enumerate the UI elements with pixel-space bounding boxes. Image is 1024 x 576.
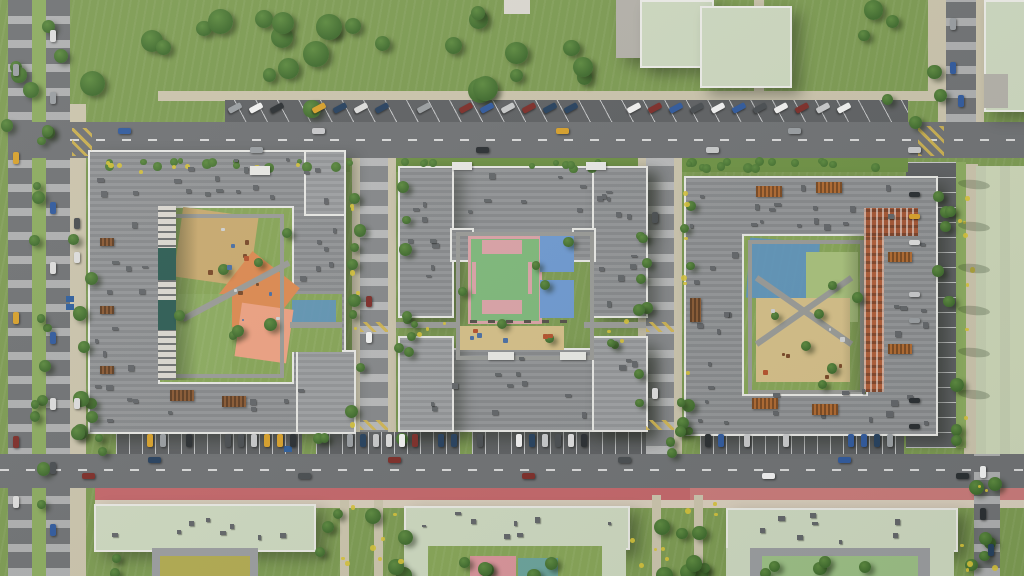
flower-shrub-icon: [960, 544, 963, 547]
tree-icon: [666, 437, 676, 447]
play-equipment-icon: [543, 334, 548, 339]
rooftop-unit: [205, 192, 210, 196]
play-equipment-icon: [840, 337, 845, 342]
car-icon: [290, 434, 296, 447]
tree-icon: [563, 237, 574, 248]
rooftop-unit: [577, 208, 582, 213]
rooftop-unit: [769, 208, 775, 211]
rooftop-unit: [519, 357, 525, 360]
flower-shrub-icon: [686, 371, 690, 375]
rooftop-unit: [112, 261, 119, 264]
car-icon: [360, 434, 366, 447]
car-icon: [542, 102, 557, 114]
flower-shrub-icon: [639, 563, 644, 568]
tree-icon: [31, 400, 40, 409]
tree-icon: [348, 294, 361, 307]
rooftop-unit: [132, 222, 137, 227]
car-icon: [542, 434, 548, 447]
car-icon: [988, 544, 994, 556]
tree-icon: [445, 37, 462, 54]
car-icon: [794, 102, 809, 114]
car-icon: [13, 436, 19, 448]
car-icon: [529, 434, 535, 447]
flower-shrub-icon: [345, 561, 349, 565]
rooftop-unit: [522, 381, 528, 385]
rooftop-unit: [630, 264, 636, 269]
tree-icon: [459, 557, 470, 568]
tree-icon: [78, 341, 90, 353]
car-icon: [958, 95, 964, 107]
play-equipment-icon: [256, 283, 259, 286]
bush-icon: [420, 160, 427, 167]
tree-icon: [634, 369, 644, 379]
rooftop-unit: [602, 194, 606, 199]
rooftop-unit: [700, 195, 704, 198]
rooftop-unit: [923, 322, 928, 328]
rooftop-unit: [101, 191, 108, 196]
bush-icon: [178, 158, 184, 164]
tree-icon: [677, 398, 685, 406]
tree-icon: [545, 557, 558, 570]
tree-icon: [676, 528, 688, 540]
rooftop-unit: [112, 327, 118, 330]
bush-icon: [829, 161, 837, 169]
tree-icon: [814, 309, 824, 319]
flower-shrub-icon: [378, 557, 382, 561]
car-icon: [909, 424, 920, 429]
tree-icon: [1, 119, 13, 131]
tree-icon: [458, 287, 467, 296]
bush-icon: [233, 162, 240, 169]
tree-icon: [988, 477, 1002, 491]
tree-icon: [264, 318, 277, 331]
flower-shrub-icon: [630, 538, 635, 543]
flower-shrub-icon: [341, 557, 345, 561]
car-icon: [909, 318, 920, 323]
car-icon: [50, 202, 56, 214]
rooftop-unit: [895, 519, 899, 525]
car-icon: [838, 457, 851, 463]
tree-icon: [680, 224, 689, 233]
pergola-icon: [888, 252, 912, 262]
flower-shrub-icon: [370, 545, 376, 551]
bush-icon: [702, 164, 711, 173]
flower-shrub-icon: [350, 204, 354, 208]
car-icon: [887, 434, 893, 447]
rooftop-unit: [599, 267, 604, 270]
car-icon: [710, 102, 725, 114]
car-icon: [147, 434, 153, 447]
tree-icon: [112, 554, 120, 562]
tree-icon: [864, 0, 883, 19]
rooftop-unit: [773, 393, 780, 397]
pergola-icon: [690, 298, 701, 322]
bush-icon: [208, 158, 217, 167]
car-icon: [264, 434, 270, 447]
rooftop-unit: [333, 228, 336, 233]
bush-icon: [871, 163, 880, 172]
tree-icon: [95, 434, 103, 442]
rooftop-unit: [814, 218, 819, 224]
tree-icon: [375, 36, 390, 51]
pergola-icon: [100, 366, 114, 374]
play-equipment-icon: [231, 244, 235, 248]
car-icon: [705, 434, 711, 447]
flower-shrub-icon: [985, 489, 988, 492]
pergola-icon: [250, 166, 270, 175]
play-equipment-icon: [269, 292, 273, 296]
rooftop-unit: [139, 289, 144, 294]
flower-shrub-icon: [683, 191, 688, 196]
car-icon: [50, 92, 56, 104]
tree-icon: [692, 526, 706, 540]
rooftop-unit: [724, 312, 729, 317]
tree-icon: [407, 332, 416, 341]
rooftop-unit: [717, 329, 720, 334]
rooftop-unit: [842, 391, 849, 395]
car-icon: [706, 147, 719, 153]
car-icon: [13, 312, 19, 324]
tree-icon: [282, 228, 292, 238]
rooftop-unit: [422, 525, 425, 528]
tree-shadow: [958, 262, 991, 274]
car-icon: [353, 102, 368, 114]
pergola-icon: [752, 398, 778, 409]
tree-shadow: [958, 304, 991, 316]
car-icon: [668, 102, 683, 114]
tree-icon: [98, 447, 107, 456]
pergola-icon: [222, 396, 246, 407]
rooftop-unit: [755, 204, 759, 209]
rooftop-unit: [924, 421, 928, 425]
rooftop-unit: [431, 265, 434, 270]
car-icon: [773, 102, 788, 114]
rooftop-unit: [850, 206, 855, 212]
flower-shrub-icon: [350, 270, 355, 275]
tree-icon: [411, 321, 419, 329]
tree-icon: [402, 216, 411, 225]
rooftop-unit: [324, 247, 328, 251]
car-icon: [555, 434, 561, 447]
rooftop-unit: [280, 533, 286, 537]
car-icon: [500, 102, 515, 114]
car-icon: [386, 434, 392, 447]
tree-icon: [68, 234, 78, 244]
play-equipment-icon: [782, 353, 786, 357]
bench-icon: [542, 320, 549, 323]
flower-shrub-icon: [417, 332, 422, 337]
rooftop-unit: [607, 301, 611, 307]
rooftop-unit: [618, 275, 624, 281]
tree-icon: [37, 137, 46, 146]
tree-icon: [255, 10, 273, 28]
rooftop-unit: [432, 406, 437, 411]
bush-icon: [153, 162, 162, 171]
rooftop-unit: [298, 389, 304, 392]
car-icon: [332, 102, 347, 114]
rooftop-unit: [843, 222, 848, 225]
tree-icon: [254, 258, 263, 267]
rooftop-unit: [95, 385, 102, 388]
rooftop-unit: [107, 290, 112, 295]
pergola-icon: [488, 352, 514, 360]
rooftop-unit: [286, 158, 289, 161]
rooftop-unit: [893, 533, 898, 538]
car-icon: [861, 434, 867, 447]
rooftop-unit: [133, 399, 139, 403]
play-equipment-icon: [245, 240, 249, 244]
play-equipment-icon: [470, 336, 474, 340]
car-icon: [416, 102, 431, 114]
rooftop-unit: [839, 540, 842, 544]
car-icon: [476, 147, 489, 153]
pergola-icon: [170, 390, 194, 401]
car-icon: [160, 434, 166, 447]
rooftop-unit: [580, 185, 585, 188]
flower-shrub-icon: [683, 282, 686, 285]
rooftop-unit: [174, 179, 181, 183]
rooftop-unit: [606, 191, 612, 194]
rooftop-unit: [888, 214, 895, 218]
tree-icon: [505, 42, 528, 65]
tree-icon: [232, 325, 244, 337]
car-icon: [718, 434, 724, 447]
tree-icon: [819, 556, 831, 568]
bench-icon: [488, 320, 495, 323]
rooftop-unit: [631, 255, 637, 258]
rooftop-unit: [95, 339, 98, 342]
tree-icon: [345, 18, 361, 34]
car-icon: [438, 434, 444, 447]
tree-icon: [347, 259, 358, 270]
tree-icon: [73, 306, 88, 321]
rooftop-unit: [220, 531, 226, 535]
rooftop-unit: [186, 189, 191, 193]
rooftop-unit: [315, 168, 320, 171]
car-icon: [836, 102, 851, 114]
car-icon: [277, 434, 283, 447]
tree-icon: [638, 234, 647, 243]
rooftop-unit: [127, 398, 132, 401]
car-icon: [366, 332, 372, 343]
tree-icon: [473, 76, 499, 102]
car-icon: [13, 496, 19, 508]
rooftop-unit: [432, 243, 439, 248]
rooftop-unit: [921, 309, 926, 312]
car-icon: [451, 434, 457, 447]
car-icon: [399, 434, 405, 447]
tree-shadow: [958, 388, 991, 400]
tree-icon: [394, 343, 404, 353]
play-equipment-icon: [829, 328, 832, 331]
tree-icon: [354, 224, 367, 237]
flower-shrub-icon: [684, 237, 688, 241]
tree-icon: [156, 40, 170, 54]
tree-icon: [303, 41, 329, 67]
car-icon: [618, 457, 631, 463]
flower-shrub-icon: [624, 319, 629, 324]
car-icon: [374, 102, 389, 114]
play-equipment-icon: [839, 364, 843, 368]
car-icon: [74, 252, 80, 263]
bush-icon: [429, 159, 437, 167]
rooftop-unit: [304, 171, 308, 174]
tree-icon: [39, 360, 51, 372]
rooftop-unit: [492, 410, 498, 416]
tree-icon: [110, 568, 121, 576]
play-equipment-icon: [234, 289, 237, 292]
tree-icon: [345, 405, 358, 418]
rooftop-unit: [514, 521, 517, 527]
tree-icon: [356, 363, 365, 372]
bush-icon: [751, 164, 760, 173]
tree-icon: [532, 261, 541, 270]
play-equipment-icon: [763, 370, 767, 374]
car-icon: [412, 434, 418, 447]
bench-icon: [470, 320, 477, 323]
car-icon: [50, 332, 56, 344]
pergola-icon: [756, 186, 782, 197]
rooftop-unit: [895, 331, 902, 337]
tree-icon: [940, 221, 950, 231]
tree-icon: [927, 65, 941, 79]
car-icon: [477, 434, 483, 447]
flower-shrub-icon: [354, 327, 357, 330]
rooftop-unit: [516, 372, 521, 376]
car-icon: [227, 102, 242, 114]
play-equipment-icon: [238, 291, 243, 296]
rooftop-unit: [324, 198, 328, 204]
car-icon: [347, 434, 353, 447]
rooftop-unit: [801, 185, 805, 191]
bush-icon: [820, 159, 828, 167]
car-icon: [788, 128, 801, 134]
flower-shrub-icon: [967, 561, 973, 567]
detail-layer: [0, 0, 1024, 576]
rooftop-unit: [824, 224, 830, 229]
flower-shrub-icon: [426, 327, 429, 330]
rooftop-unit: [690, 224, 693, 229]
car-icon: [909, 398, 920, 403]
car-icon: [248, 102, 263, 114]
rooftop-unit: [112, 533, 117, 537]
bush-icon: [791, 159, 800, 168]
rooftop-unit: [431, 402, 434, 406]
tree-icon: [686, 555, 703, 572]
car-icon: [956, 473, 969, 479]
car-icon: [82, 473, 95, 479]
car-icon: [744, 434, 750, 447]
tree-icon: [945, 206, 956, 217]
tree-icon: [54, 49, 68, 63]
tree-icon: [365, 508, 381, 524]
car-icon: [909, 240, 920, 245]
rooftop-unit: [558, 176, 561, 179]
bench-icon: [506, 320, 513, 323]
flower-shrub-icon: [620, 339, 624, 343]
car-icon: [652, 388, 658, 399]
play-equipment-icon: [221, 228, 225, 232]
tree-icon: [30, 411, 41, 422]
bush-icon: [553, 160, 559, 166]
tree-icon: [349, 310, 357, 318]
rooftop-unit: [495, 373, 500, 376]
flower-shrub-icon: [685, 508, 691, 514]
rooftop-unit: [484, 199, 490, 202]
car-icon: [298, 473, 311, 479]
tree-icon: [934, 89, 947, 102]
tree-icon: [654, 519, 670, 535]
rooftop-unit: [284, 399, 288, 404]
rooftop-unit: [708, 386, 715, 389]
rooftop-unit: [430, 239, 436, 243]
flower-shrub-icon: [108, 163, 114, 169]
rooftop-unit: [168, 411, 172, 414]
rooftop-unit: [422, 217, 427, 222]
rooftop-unit: [133, 191, 138, 195]
rooftop-unit: [697, 323, 703, 328]
rooftop-unit: [188, 167, 194, 171]
tree-icon: [37, 462, 50, 475]
car-icon: [909, 192, 920, 197]
car-icon: [581, 434, 587, 447]
tree-icon: [316, 14, 341, 39]
rooftop-unit: [452, 383, 458, 388]
pergola-icon: [100, 238, 114, 246]
car-icon: [762, 473, 775, 479]
flower-shrub-icon: [356, 291, 360, 295]
tree-icon: [563, 40, 580, 57]
flower-shrub-icon: [172, 165, 176, 169]
flower-shrub-icon: [714, 513, 718, 517]
tree-icon: [635, 399, 644, 408]
pergola-icon: [560, 352, 586, 360]
tree-icon: [37, 314, 46, 323]
rooftop-unit: [468, 210, 471, 213]
rooftop-unit: [535, 517, 540, 523]
flower-shrub-icon: [713, 502, 717, 506]
tree-shadow: [958, 346, 991, 358]
rooftop-unit: [886, 185, 890, 191]
tree-icon: [333, 509, 343, 519]
bush-icon: [768, 158, 776, 166]
rooftop-unit: [215, 176, 218, 181]
tree-icon: [398, 530, 414, 546]
flower-shrub-icon: [381, 537, 384, 540]
car-icon: [752, 102, 767, 114]
pergola-icon: [100, 306, 114, 314]
rooftop-unit: [423, 202, 426, 208]
rooftop-unit: [760, 220, 763, 223]
flower-shrub-icon: [351, 207, 354, 210]
bush-icon: [567, 161, 575, 169]
rooftop-unit: [724, 421, 728, 424]
play-equipment-icon: [208, 270, 213, 275]
tree-icon: [527, 569, 540, 576]
rooftop-unit: [869, 417, 872, 422]
tree-icon: [951, 435, 962, 446]
tree-icon: [943, 296, 954, 307]
play-equipment-icon: [242, 319, 244, 321]
flower-shrub-icon: [965, 328, 968, 331]
rooftop-unit: [616, 212, 621, 217]
tree-icon: [685, 427, 693, 435]
rooftop-unit: [408, 239, 413, 244]
bush-icon: [529, 163, 535, 169]
tree-icon: [86, 411, 98, 423]
car-icon: [225, 434, 231, 447]
car-icon: [626, 102, 641, 114]
